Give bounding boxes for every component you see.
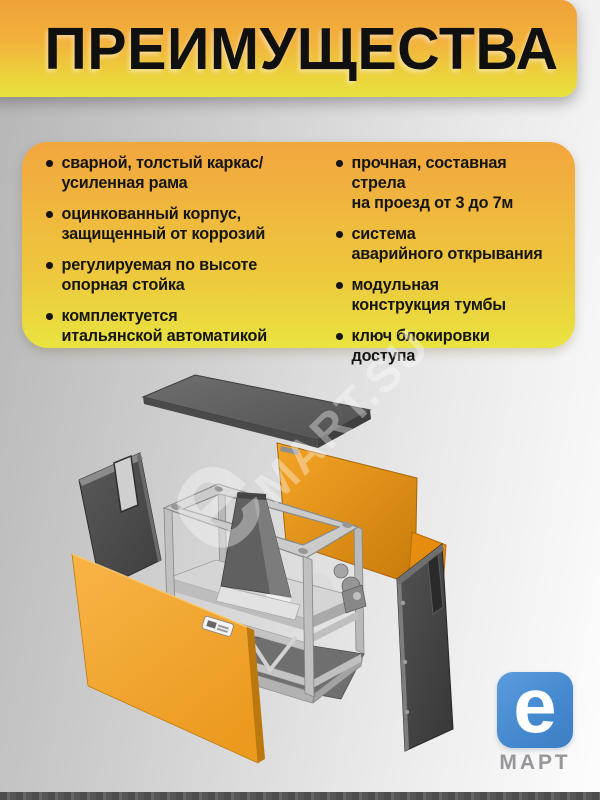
bullet-icon (46, 211, 53, 218)
bullet-icon (46, 313, 53, 320)
top-lid-panel (143, 375, 371, 448)
bullet-icon (46, 262, 53, 269)
bullet-icon (336, 160, 343, 167)
advantages-column-left: сварной, толстый каркас/усиленная рама о… (46, 153, 318, 348)
brand-logo: e МАРТ (497, 672, 573, 775)
list-item: системааварийного открывания (336, 224, 561, 264)
list-item: модульнаяконструкция тумбы (336, 275, 561, 315)
advantages-column-right: прочная, составная стрелана проезд от 3 … (336, 153, 561, 348)
header: ПРЕИМУЩЕСТВА (0, 0, 577, 97)
right-dark-panel (397, 544, 453, 751)
advantages-panel: сварной, толстый каркас/усиленная рама о… (22, 142, 575, 348)
list-item: сварной, толстый каркас/усиленная рама (46, 153, 318, 193)
list-item: комплектуетсяитальянской автоматикой (46, 306, 318, 346)
bullet-icon (336, 333, 343, 340)
logo-brand-text: МАРТ (497, 751, 573, 775)
list-item: оцинкованный корпус,защищенный от корроз… (46, 204, 318, 244)
poster: ПРЕИМУЩЕСТВА сварной, толстый каркас/уси… (0, 0, 600, 800)
list-item: ключ блокировкидоступа (336, 326, 561, 366)
list-item: прочная, составная стрелана проезд от 3 … (336, 153, 561, 213)
bullet-icon (46, 160, 53, 167)
list-item: регулируемая по высотеопорная стойка (46, 255, 318, 295)
bottom-strip (0, 792, 600, 800)
bullet-icon (336, 282, 343, 289)
logo-e-icon: e (497, 672, 573, 748)
page-title: ПРЕИМУЩЕСТВА (44, 15, 558, 83)
bullet-icon (336, 231, 343, 238)
